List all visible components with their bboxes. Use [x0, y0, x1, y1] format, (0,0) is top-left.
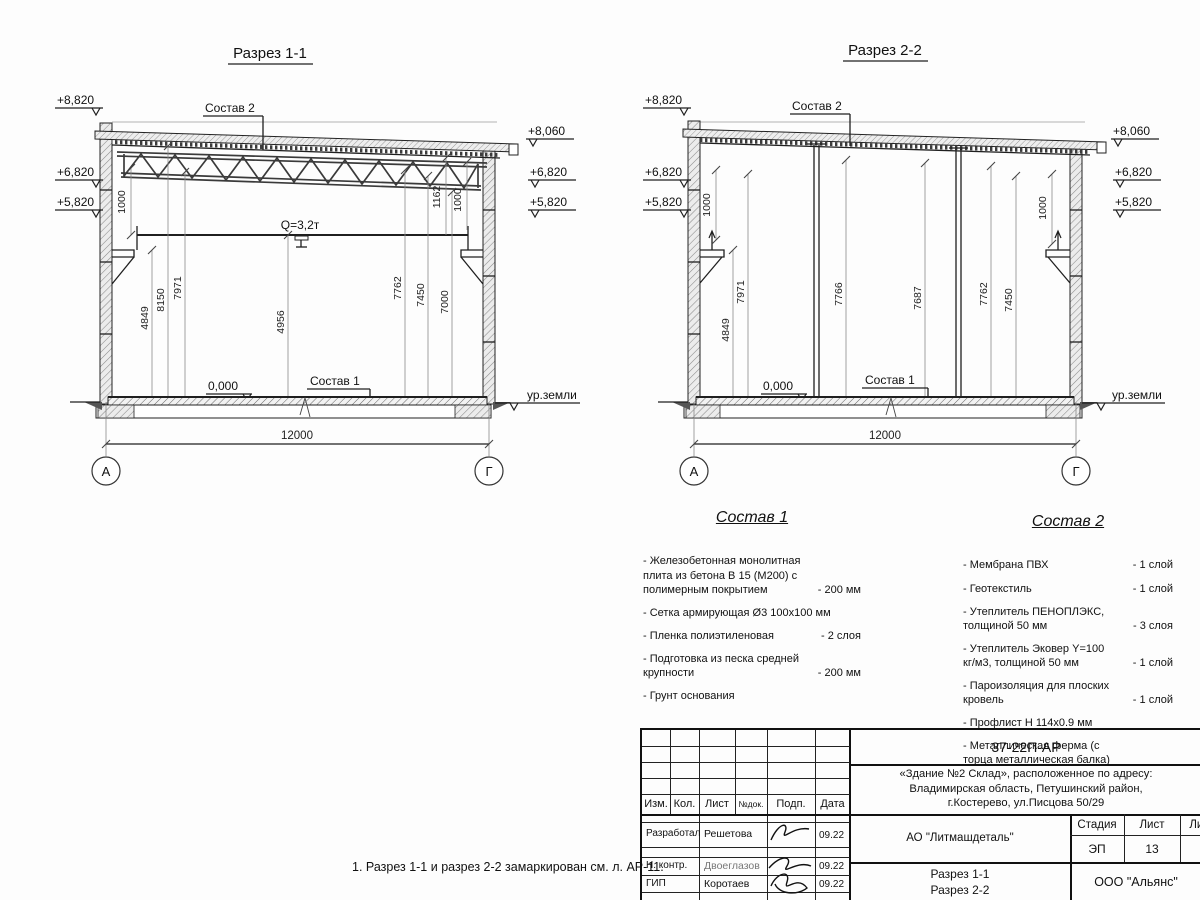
- svg-text:Состав 2: Состав 2: [792, 99, 842, 113]
- svg-text:0,000: 0,000: [208, 379, 238, 393]
- crane-beam: Q=3,2т: [137, 218, 468, 250]
- right-corbel: [1046, 231, 1070, 283]
- svg-text:4849: 4849: [139, 306, 151, 330]
- composition-list-1: Состав 1 - Железобетонная монолитная пли…: [643, 508, 861, 712]
- svg-text:7450: 7450: [415, 283, 427, 307]
- col-list: Лист: [699, 794, 735, 814]
- title-block: Изм. Кол. Лист №док. Подп. Дата Разработ…: [640, 728, 1200, 900]
- svg-text:1000: 1000: [452, 188, 464, 212]
- company-name: АО "Литмашдеталь": [850, 814, 1070, 862]
- signature-developer: [771, 825, 809, 840]
- list-item: - Пленка полиэтиленовая- 2 слоя: [643, 629, 861, 643]
- axis-bubbles: А Г: [92, 457, 503, 485]
- list-item: - Железобетонная монолитная плита из бет…: [643, 554, 861, 596]
- date-gip: 09.22: [819, 879, 844, 890]
- sheets-value: 14: [1180, 835, 1200, 862]
- svg-text:+8,060: +8,060: [1113, 124, 1150, 138]
- sheet-label: Лист: [1124, 814, 1180, 835]
- svg-text:А: А: [690, 464, 699, 479]
- left-wall: [100, 123, 112, 404]
- right-wall: [483, 148, 495, 404]
- vertical-dimensions: 1000 4849 7971 7766 7687 7762 7450 1000: [701, 156, 1056, 402]
- elevation-marks-right: +8,060 +6,820 +5,820: [526, 124, 576, 217]
- ground-level-label: ур.земли: [1082, 388, 1165, 410]
- svg-text:+5,820: +5,820: [57, 195, 94, 209]
- role-ncontrol: Н. контр.: [646, 860, 687, 871]
- axis-bubbles: А Г: [680, 457, 1090, 485]
- svg-text:Г: Г: [1072, 464, 1079, 479]
- roof-truss: [117, 152, 487, 190]
- drawing-sheet: { "sections": { "s1": { "title": "Разрез…: [0, 0, 1200, 900]
- svg-text:+6,820: +6,820: [57, 165, 94, 179]
- col-data: Дата: [815, 794, 850, 814]
- sheet-value: 13: [1124, 835, 1180, 862]
- name-ncontrol: Двоеглазов: [704, 860, 760, 872]
- ground-level-label: ур.земли: [495, 388, 580, 410]
- list-item: - Сетка армирующая Ø3 100х100 мм: [643, 606, 861, 620]
- svg-text:+6,820: +6,820: [1115, 165, 1152, 179]
- svg-text:7971: 7971: [172, 276, 184, 300]
- crane-capacity-label: Q=3,2т: [281, 218, 320, 232]
- svg-text:Состав 1: Состав 1: [310, 374, 360, 388]
- svg-text:7971: 7971: [735, 280, 747, 304]
- svg-text:А: А: [102, 464, 111, 479]
- svg-text:Г: Г: [485, 464, 492, 479]
- svg-text:+6,820: +6,820: [645, 165, 682, 179]
- col-izm: Изм.: [642, 794, 670, 814]
- floor-slab: [658, 397, 1098, 418]
- right-wall: [1070, 146, 1082, 404]
- sheets-label: Листов: [1180, 814, 1200, 835]
- role-developer: Разработал: [646, 828, 700, 839]
- svg-text:1000: 1000: [701, 193, 713, 217]
- left-corbel: [112, 250, 134, 284]
- elevation-marks-left: +8,820 +6,820 +5,820: [55, 93, 103, 217]
- stage-label: Стадия: [1070, 814, 1124, 835]
- svg-text:+8,060: +8,060: [528, 124, 565, 138]
- right-corbel: [461, 250, 483, 284]
- svg-text:+6,820: +6,820: [530, 165, 567, 179]
- document-code: 37-22П-АР: [850, 730, 1200, 764]
- project-description: «Здание №2 Склад», расположенное по адре…: [850, 764, 1200, 814]
- composition-2-title: Состав 2: [963, 512, 1173, 532]
- svg-text:8150: 8150: [155, 288, 167, 312]
- svg-text:0,000: 0,000: [763, 379, 793, 393]
- svg-text:7762: 7762: [392, 276, 404, 300]
- list-item: - Утеплитель ПЕНОПЛЭКС, толщиной 50 мм- …: [963, 605, 1173, 633]
- role-gip: ГИП: [646, 878, 666, 889]
- svg-text:+5,820: +5,820: [1115, 195, 1152, 209]
- svg-text:1000: 1000: [116, 190, 128, 214]
- col-kol: Кол.: [670, 794, 699, 814]
- svg-text:+8,820: +8,820: [645, 93, 682, 107]
- signature-gip: [769, 858, 811, 893]
- name-developer: Решетова: [704, 828, 752, 840]
- list-item: - Утеплитель Эковер Y=100 кг/м3, толщино…: [963, 642, 1173, 670]
- interior-columns: [807, 144, 968, 397]
- svg-text:ур.земли: ур.земли: [1112, 388, 1162, 402]
- list-item: - Пароизоляция для плоских кровель- 1 сл…: [963, 679, 1173, 707]
- svg-text:7450: 7450: [1003, 288, 1015, 312]
- stage-value: ЭП: [1070, 835, 1124, 862]
- composition-1-title: Состав 1: [643, 508, 861, 528]
- svg-text:4849: 4849: [720, 318, 732, 342]
- date-ncontrol: 09.22: [819, 861, 844, 872]
- svg-text:12000: 12000: [281, 430, 313, 442]
- section-title: Разрез 2-2: [848, 42, 922, 59]
- list-item: - Грунт основания: [643, 689, 861, 703]
- section-title: Разрез 1-1: [233, 45, 307, 62]
- svg-text:ур.земли: ур.земли: [527, 388, 577, 402]
- svg-text:4956: 4956: [275, 310, 287, 334]
- svg-text:Состав 1: Состав 1: [865, 373, 915, 387]
- svg-text:+5,820: +5,820: [530, 195, 567, 209]
- col-podp: Подп.: [767, 794, 815, 814]
- svg-text:1000: 1000: [1037, 196, 1049, 220]
- svg-text:+8,820: +8,820: [57, 93, 94, 107]
- svg-text:+5,820: +5,820: [645, 195, 682, 209]
- elevation-marks-right: +8,060 +6,820 +5,820: [1111, 124, 1161, 217]
- svg-text:7687: 7687: [912, 286, 924, 310]
- section-2-2: Разрез 2-2: [643, 42, 1165, 485]
- elevation-marks-left: +8,820 +6,820 +5,820: [643, 93, 691, 217]
- organization-name: ООО "Альянс": [1070, 862, 1200, 900]
- svg-text:1162: 1162: [431, 186, 443, 209]
- list-item: - Подготовка из песка средней крупности-…: [643, 652, 861, 680]
- svg-text:Состав 2: Состав 2: [205, 101, 255, 115]
- name-gip: Коротаев: [704, 878, 749, 890]
- date-developer: 09.22: [819, 830, 844, 841]
- floor-slab: [70, 397, 511, 418]
- svg-text:7762: 7762: [978, 282, 990, 306]
- left-corbel: [700, 231, 724, 283]
- left-wall: [688, 121, 700, 404]
- roof-assembly: [683, 129, 1106, 155]
- drawing-title: Разрез 1-1 Разрез 2-2: [850, 862, 1070, 900]
- section-1-1: Разрез 1-1: [55, 45, 580, 485]
- list-item: - Мембрана ПВХ- 1 слой: [963, 558, 1173, 572]
- svg-text:12000: 12000: [869, 430, 901, 442]
- list-item: - Геотекстиль- 1 слой: [963, 582, 1173, 596]
- svg-text:7000: 7000: [439, 290, 451, 314]
- col-ndok: №док.: [735, 794, 767, 814]
- sheet-note: 1. Разрез 1-1 и разрез 2-2 замаркирован …: [352, 860, 664, 874]
- signatures: [767, 816, 815, 900]
- svg-text:7766: 7766: [833, 282, 845, 306]
